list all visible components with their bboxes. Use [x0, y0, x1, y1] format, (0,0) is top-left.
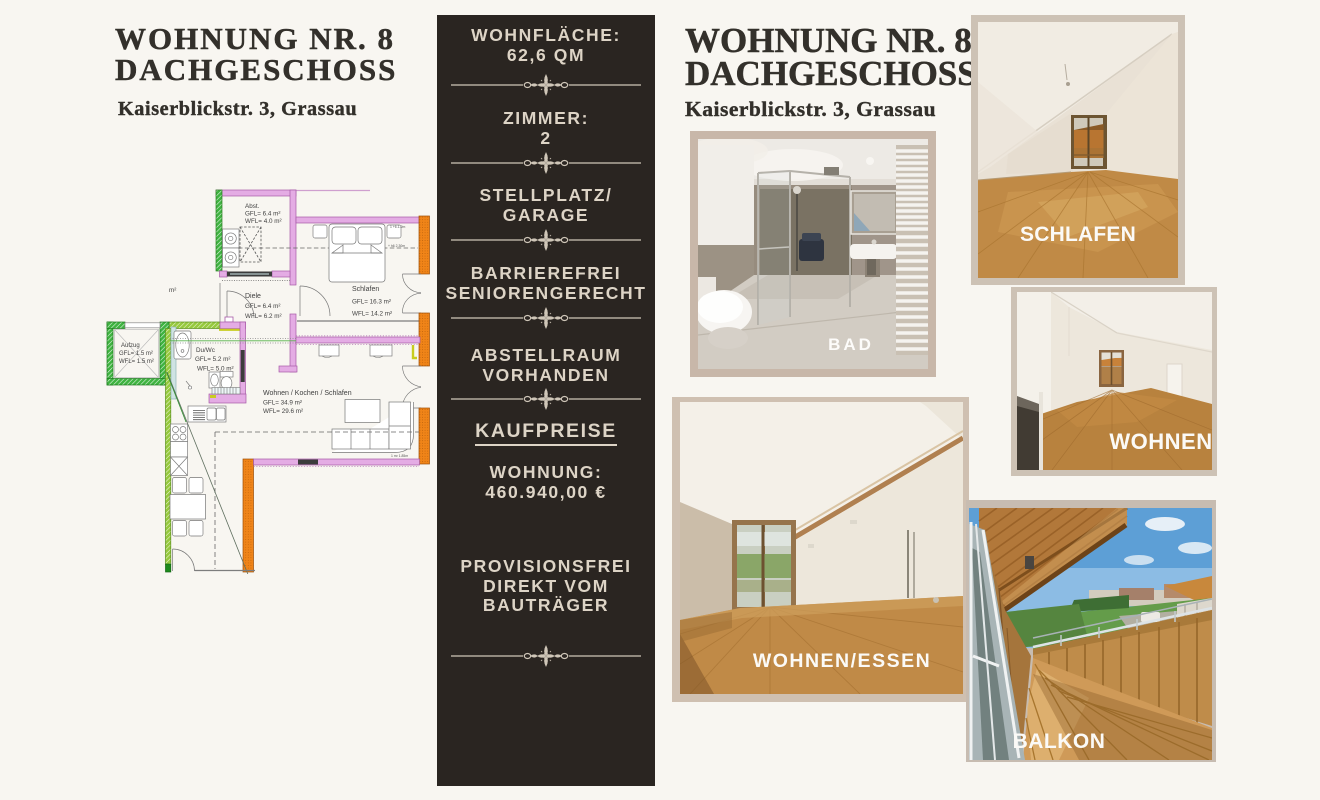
svg-text:SCHLAFEN: SCHLAFEN: [1020, 223, 1136, 246]
svg-text:GFL= 34.9 m²: GFL= 34.9 m²: [263, 400, 302, 407]
svg-text:WOHNEN: WOHNEN: [1109, 429, 1212, 454]
svg-text:WFL= 5.0 m²: WFL= 5.0 m²: [197, 366, 234, 373]
svg-text:GFL= 6.4 m²: GFL= 6.4 m²: [245, 211, 281, 218]
svg-text:Abst.: Abst.: [245, 203, 260, 210]
svg-text:GFL= 6.4 m²: GFL= 6.4 m²: [245, 303, 281, 310]
svg-text:m²: m²: [169, 287, 176, 294]
svg-text:WFL= 6.2 m²: WFL= 6.2 m²: [245, 313, 282, 320]
svg-text:WFL= 14.2 m²: WFL= 14.2 m²: [352, 311, 392, 318]
svg-text:WFL= 1.5 m²: WFL= 1.5 m²: [119, 359, 154, 365]
svg-text:1 m² 1.85m: 1 m² 1.85m: [391, 454, 408, 458]
svg-text:1 +6.1-2m: 1 +6.1-2m: [390, 225, 406, 229]
svg-text:Aufzug: Aufzug: [121, 343, 140, 349]
svg-text:BALKON: BALKON: [1013, 730, 1106, 753]
svg-text:BAD: BAD: [828, 335, 874, 354]
svg-text:WFL= 4.0 m²: WFL= 4.0 m²: [245, 218, 282, 225]
svg-text:+ h6 2.30m: + h6 2.30m: [388, 244, 405, 248]
svg-text:WOHNEN/ESSEN: WOHNEN/ESSEN: [753, 650, 931, 672]
svg-text:Diele: Diele: [245, 293, 261, 300]
svg-text:Du/Wc: Du/Wc: [196, 347, 215, 354]
svg-text:Wohnen / Kochen / Schlafen: Wohnen / Kochen / Schlafen: [263, 390, 352, 397]
svg-text:GFL= 16.3 m²: GFL= 16.3 m²: [352, 299, 391, 306]
svg-text:WFL= 29.6 m²: WFL= 29.6 m²: [263, 408, 303, 415]
svg-text:GFL= 1.5 m²: GFL= 1.5 m²: [119, 351, 153, 357]
svg-text:GFL= 5.2 m²: GFL= 5.2 m²: [195, 356, 231, 363]
svg-text:Schlafen: Schlafen: [352, 286, 379, 293]
